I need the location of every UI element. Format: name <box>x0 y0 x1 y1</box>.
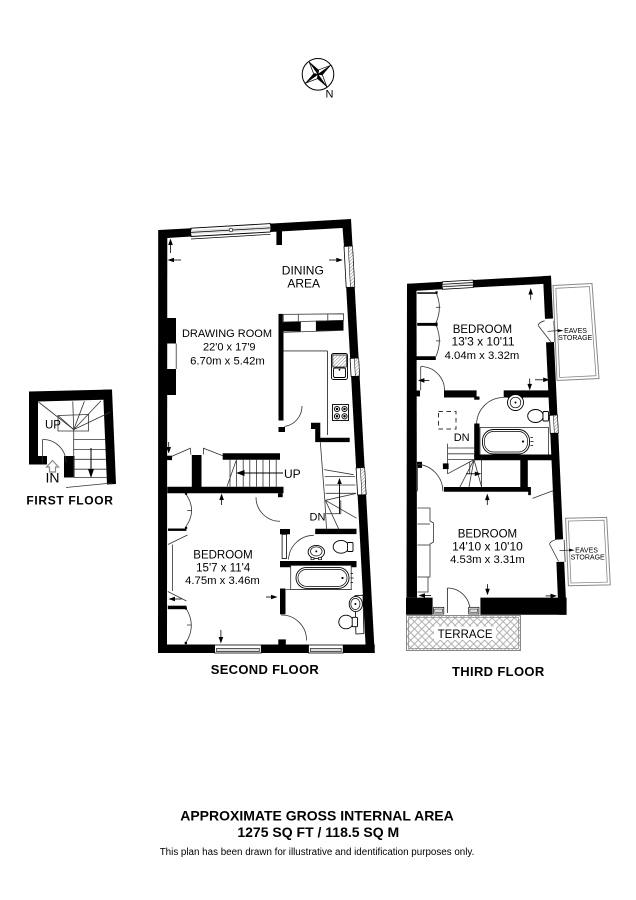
svg-text:14'10 x 10'10: 14'10 x 10'10 <box>452 540 523 554</box>
svg-text:UP: UP <box>284 467 301 481</box>
svg-text:FIRST FLOOR: FIRST FLOOR <box>26 494 113 508</box>
svg-text:UP: UP <box>45 420 61 432</box>
svg-text:THIRD FLOOR: THIRD FLOOR <box>452 664 545 679</box>
svg-text:1275 SQ FT / 118.5 SQ M: 1275 SQ FT / 118.5 SQ M <box>237 824 399 840</box>
svg-text:DINING: DINING <box>282 264 324 278</box>
svg-text:DN: DN <box>454 432 470 444</box>
svg-text:13'3 x 10'11: 13'3 x 10'11 <box>451 335 514 349</box>
svg-text:4.04m x 3.32m: 4.04m x 3.32m <box>445 350 520 362</box>
svg-text:STORAGE: STORAGE <box>558 335 592 342</box>
svg-text:4.53m x 3.31m: 4.53m x 3.31m <box>450 554 525 566</box>
svg-text:EAVES: EAVES <box>564 328 587 335</box>
svg-text:DN: DN <box>310 512 326 524</box>
svg-text:EAVES: EAVES <box>575 548 598 555</box>
svg-text:This plan has been drawn for i: This plan has been drawn for illustrativ… <box>160 847 475 858</box>
svg-text:22'0 x 17'9: 22'0 x 17'9 <box>203 342 256 354</box>
svg-text:15'7 x 11'4: 15'7 x 11'4 <box>196 562 251 574</box>
svg-text:DRAWING ROOM: DRAWING ROOM <box>182 328 272 340</box>
svg-text:APPROXIMATE GROSS INTERNAL ARE: APPROXIMATE GROSS INTERNAL AREA <box>180 808 454 824</box>
svg-text:4.75m x 3.46m: 4.75m x 3.46m <box>185 575 260 587</box>
svg-text:SECOND FLOOR: SECOND FLOOR <box>211 662 320 677</box>
svg-text:AREA: AREA <box>287 277 320 291</box>
svg-text:STORAGE: STORAGE <box>571 555 605 562</box>
svg-text:6.70m x 5.42m: 6.70m x 5.42m <box>190 355 265 367</box>
svg-text:IN: IN <box>46 469 60 485</box>
svg-text:N: N <box>326 88 334 100</box>
svg-text:BEDROOM: BEDROOM <box>193 550 252 562</box>
svg-text:TERRACE: TERRACE <box>438 629 493 641</box>
